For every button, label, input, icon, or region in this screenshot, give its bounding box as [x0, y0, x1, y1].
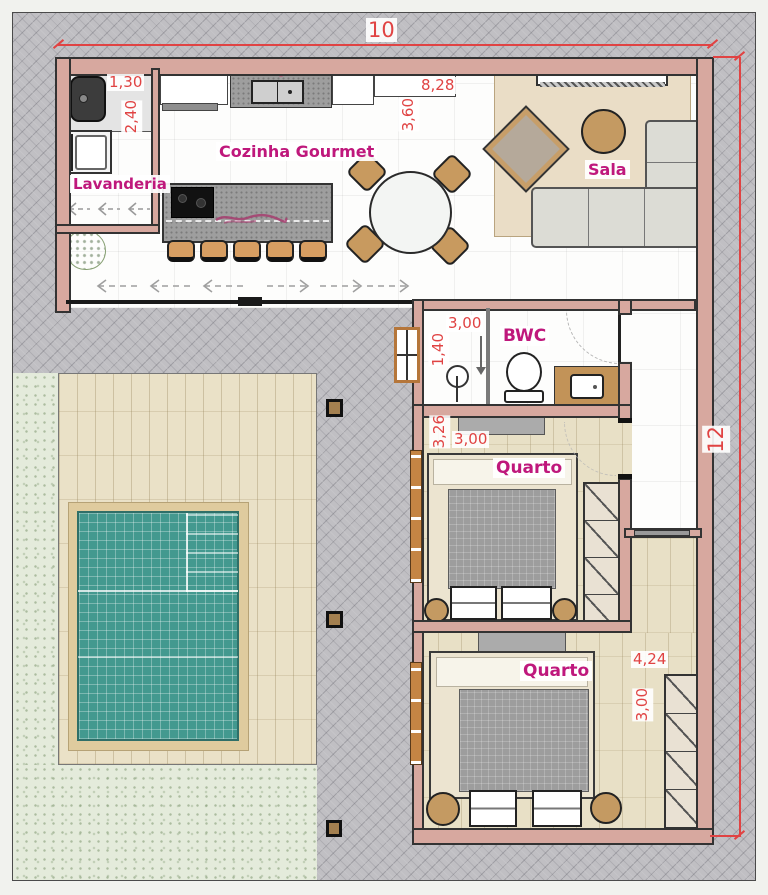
- door-jamb: [618, 418, 632, 423]
- wall-bathroom-north: [412, 299, 696, 311]
- plant-icon: [66, 230, 106, 270]
- bed-blanket: [448, 489, 556, 589]
- pool-lane-line: [78, 656, 238, 658]
- grass-bottom-area: [13, 765, 317, 880]
- toilet-icon: [506, 352, 542, 392]
- kitchen-cabinet: [332, 75, 374, 105]
- door-jamb: [618, 474, 632, 479]
- lot-depth-dimension: 12: [702, 426, 730, 453]
- hall-sliding-door: [634, 530, 690, 536]
- hall-floor: [624, 300, 702, 538]
- wall-bedroom1-east-lower: [618, 478, 632, 633]
- tv-screen: [540, 82, 665, 87]
- dimension-line-depth: [739, 57, 741, 837]
- bedside-pouf: [590, 792, 622, 824]
- laundry-label: Lavanderia: [70, 175, 170, 193]
- pergola-post: [326, 399, 343, 417]
- bed-foot-chest: [501, 586, 552, 620]
- kitchen-label: Cozinha Gourmet: [216, 142, 377, 161]
- bar-stool: [299, 240, 327, 262]
- bathroom-label: BWC: [500, 326, 549, 346]
- bar-stool: [200, 240, 228, 262]
- bedroom2-depth-dimension: 3,00: [632, 688, 653, 721]
- living-label: Sala: [585, 160, 630, 179]
- bathroom-width-dimension: 3,00: [446, 315, 483, 332]
- countertop-decor-squiggle: [212, 210, 290, 226]
- vanity-drain-dot: [593, 385, 597, 389]
- lot-width-dimension: 10: [366, 18, 397, 42]
- bar-stool: [233, 240, 261, 262]
- bedroom1-width-dimension: 3,00: [452, 431, 489, 448]
- bed-foot-chest: [532, 790, 582, 827]
- wall-shower-divider: [486, 308, 490, 408]
- sliding-door-arrows-icon: [95, 278, 411, 294]
- pool-steps: [186, 513, 238, 592]
- wall-laundry-divider: [151, 68, 160, 233]
- wall-west-upper: [55, 57, 71, 313]
- bedroom2-window: [410, 662, 422, 765]
- washer-door: [75, 135, 107, 170]
- bedroom1-label: Quarto: [493, 458, 565, 478]
- wall-laundry-south: [55, 224, 160, 234]
- laundry-door-arrows-icon: [66, 198, 152, 220]
- pergola-post: [326, 820, 342, 837]
- bedroom2-label: Quarto: [520, 661, 592, 681]
- laundry-tub: [70, 76, 106, 122]
- cooktop-burner: [178, 194, 187, 203]
- laundry-tub-drain: [79, 94, 88, 103]
- shower-stem: [456, 376, 458, 402]
- shower-flow-arrow: [480, 336, 482, 368]
- bedroom2-width-dimension: 4,24: [631, 651, 668, 668]
- bedroom1-wardrobe: [583, 482, 620, 633]
- dining-table: [369, 171, 452, 254]
- bathroom-window: [394, 327, 420, 383]
- cooktop: [171, 187, 214, 218]
- sliding-door-handle: [238, 297, 262, 306]
- bedroom1-depth-dimension: 3,26: [429, 415, 450, 448]
- bed-foot-chest: [469, 790, 517, 827]
- bed-blanket: [459, 689, 589, 792]
- laundry-width-dimension: 1,30: [107, 74, 144, 91]
- sofa-seats: [531, 187, 701, 248]
- ottoman-pouf: [581, 109, 626, 154]
- sink-drain-dot: [288, 90, 292, 94]
- social-depth-dimension: 3,60: [398, 98, 419, 131]
- kitchen-sink: [251, 80, 304, 104]
- bed-foot-chest: [450, 586, 497, 620]
- social-width-dimension: 8,28: [419, 77, 456, 94]
- bathroom-door-leaf: [618, 314, 621, 362]
- pool-lane-line: [78, 590, 238, 592]
- bedside-pouf: [426, 792, 460, 826]
- vanity-sink-icon: [570, 374, 604, 399]
- pergola-post: [326, 611, 343, 628]
- laundry-depth-dimension: 2,40: [121, 100, 142, 133]
- wall-south: [412, 828, 714, 845]
- cooktop-burner: [196, 198, 206, 208]
- dimension-line-width: [58, 44, 713, 46]
- kitchen-cabinet: [160, 75, 228, 105]
- wall-bathroom-east-upper: [618, 299, 632, 315]
- bedroom2-entry-floor: [624, 530, 702, 633]
- bar-stool: [167, 240, 195, 262]
- toilet-tank: [504, 390, 544, 403]
- bathroom-depth-dimension: 1,40: [428, 333, 449, 366]
- floor-plan: 10 12 1,30 2,40 8,28 3,60 3,00 1,40 3,26…: [0, 0, 768, 895]
- bar-stool: [266, 240, 294, 262]
- shower-flow-arrowhead: [476, 367, 486, 375]
- bedroom1-window: [410, 450, 422, 583]
- kitchen-wall-stub: [162, 103, 218, 111]
- wall-between-bedrooms: [412, 620, 632, 633]
